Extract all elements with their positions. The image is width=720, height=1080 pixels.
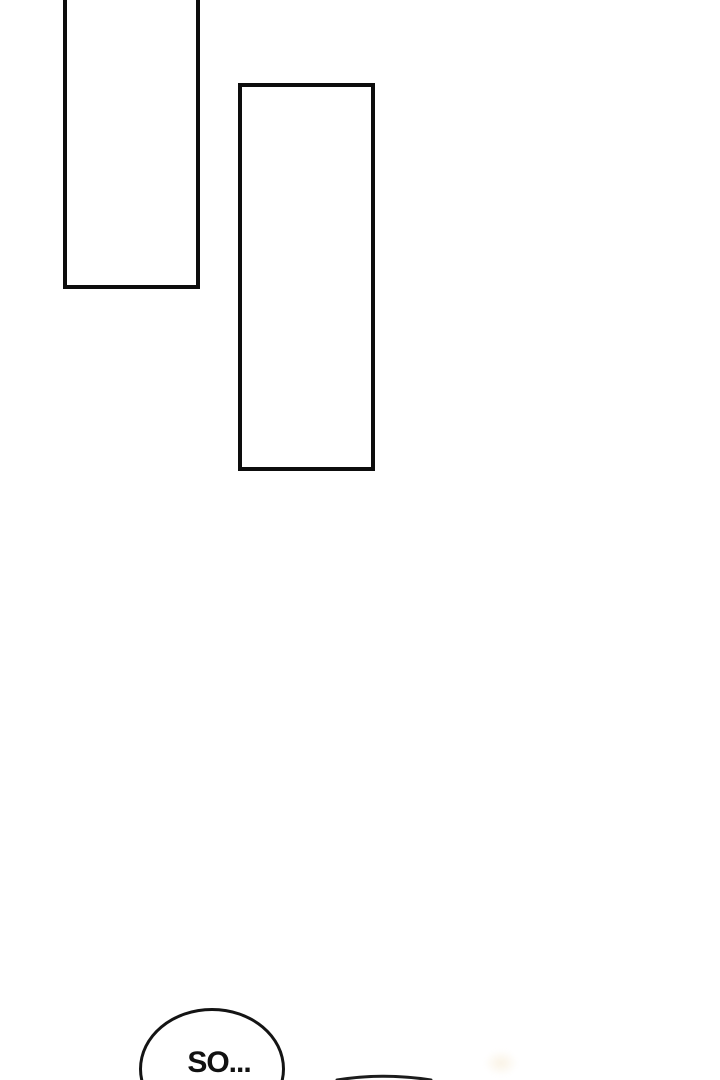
webtoon-page: SO... bbox=[0, 0, 720, 1080]
faint-skin-tone-patch bbox=[484, 1050, 518, 1076]
comic-panel-frame-center bbox=[238, 83, 375, 471]
bottom-edge-arc-path bbox=[337, 1076, 431, 1080]
comic-panel-frame-top-left bbox=[63, 0, 200, 289]
speech-bubble-text: SO... bbox=[146, 1046, 292, 1080]
bottom-edge-arc bbox=[335, 1071, 433, 1080]
